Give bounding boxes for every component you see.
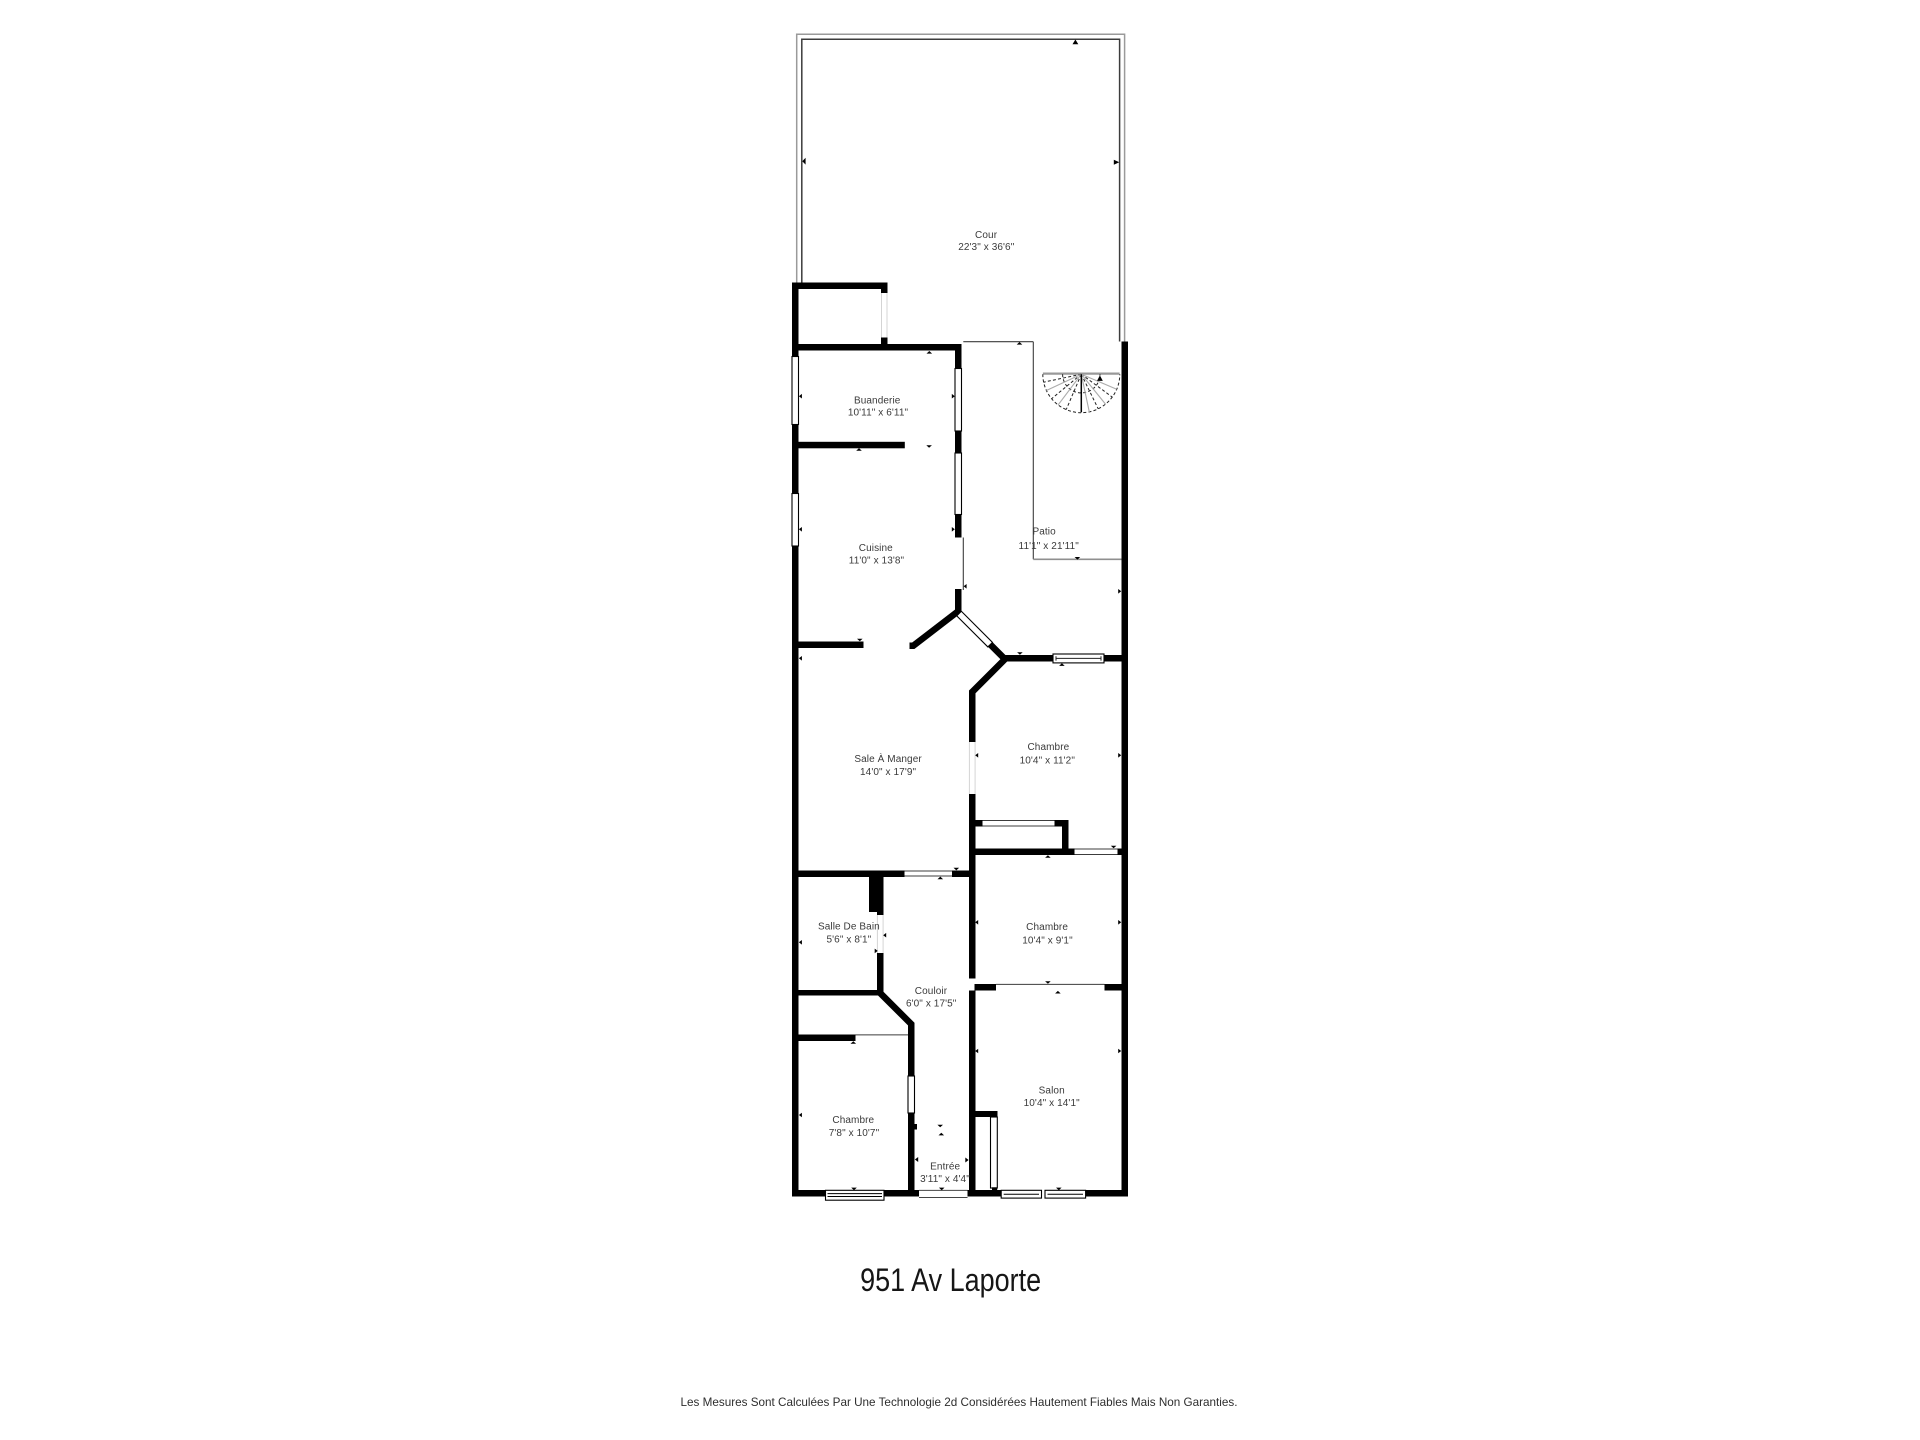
svg-text:11'0" x 13'8": 11'0" x 13'8" (849, 555, 905, 566)
svg-text:5'6" x 8'1": 5'6" x 8'1" (826, 935, 871, 946)
svg-text:Cuisine: Cuisine (859, 543, 893, 554)
svg-text:22'3" x 36'6": 22'3" x 36'6" (958, 242, 1014, 253)
svg-text:Patio: Patio (1032, 526, 1056, 537)
svg-text:10'4" x 14'1": 10'4" x 14'1" (1024, 1098, 1080, 1109)
svg-text:Couloir: Couloir (915, 986, 948, 997)
svg-text:951 Av Laporte: 951 Av Laporte (860, 1262, 1041, 1298)
svg-text:10'11" x 6'11": 10'11" x 6'11" (848, 408, 909, 419)
svg-text:Salle De Bain: Salle De Bain (818, 921, 880, 932)
svg-text:Salon: Salon (1039, 1086, 1065, 1097)
svg-text:3'11" x 4'4": 3'11" x 4'4" (920, 1174, 970, 1185)
svg-text:Entrée: Entrée (930, 1161, 960, 1172)
svg-text:10'4" x 11'2": 10'4" x 11'2" (1020, 755, 1076, 766)
svg-text:7'8" x 10'7": 7'8" x 10'7" (829, 1128, 880, 1139)
svg-text:6'0" x 17'5": 6'0" x 17'5" (906, 999, 957, 1010)
svg-text:Cour: Cour (975, 230, 998, 241)
svg-text:Chambre: Chambre (1026, 922, 1068, 933)
svg-text:Sale À Manger: Sale À Manger (854, 752, 922, 765)
svg-text:Chambre: Chambre (832, 1115, 874, 1126)
svg-text:14'0" x 17'9": 14'0" x 17'9" (860, 767, 916, 778)
svg-text:Les Mesures Sont Calculées Par: Les Mesures Sont Calculées Par Une Techn… (681, 1395, 1238, 1409)
svg-text:11'1" x 21'11": 11'1" x 21'11" (1019, 541, 1080, 552)
svg-text:10'4" x 9'1": 10'4" x 9'1" (1022, 936, 1073, 947)
svg-text:Buanderie: Buanderie (854, 395, 901, 406)
svg-text:Chambre: Chambre (1027, 742, 1069, 753)
